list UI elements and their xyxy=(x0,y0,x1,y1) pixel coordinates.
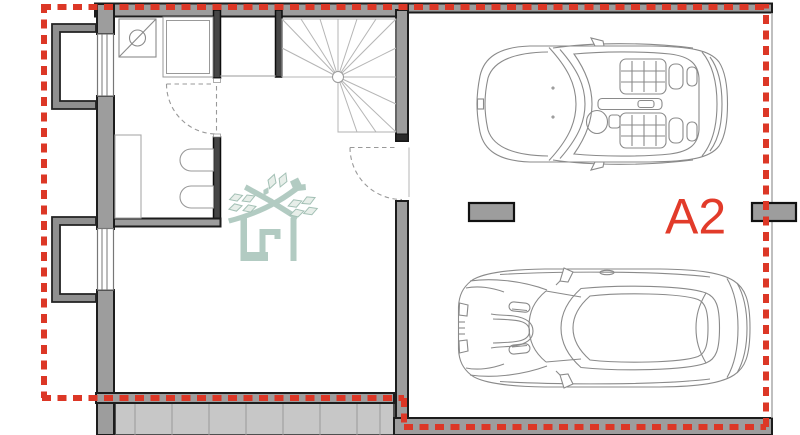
svg-text:A2: A2 xyxy=(665,189,726,245)
